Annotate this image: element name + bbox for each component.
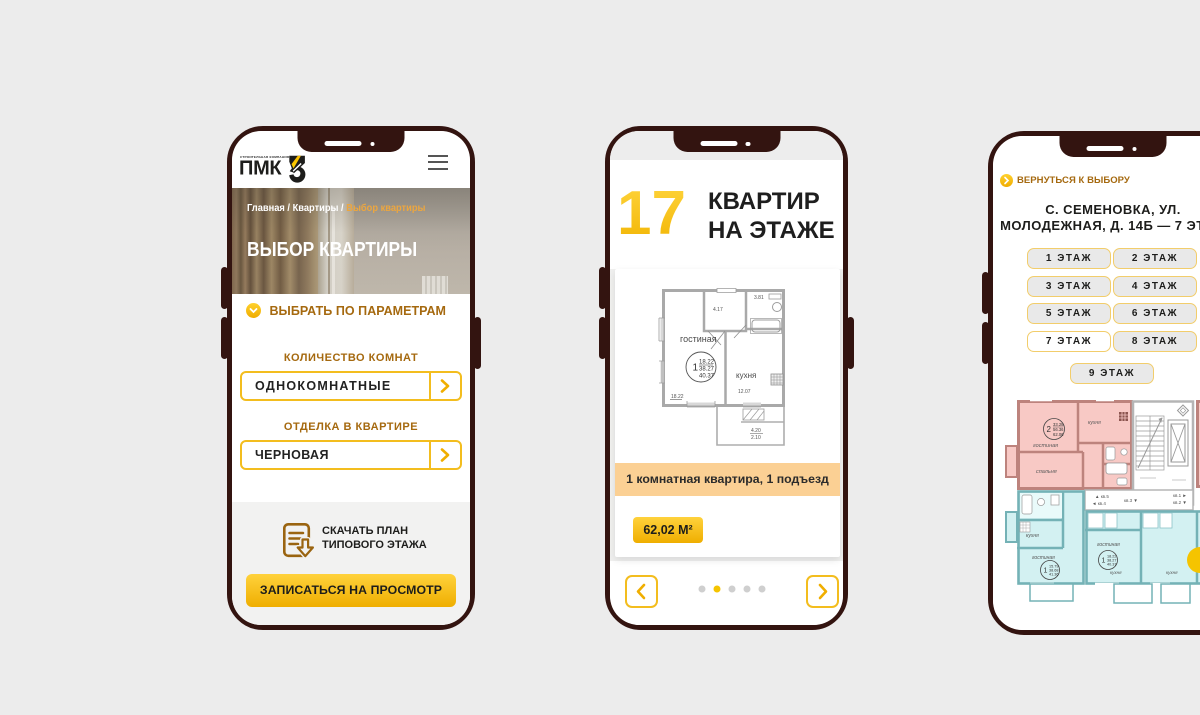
svg-text:4.17: 4.17 bbox=[713, 307, 723, 313]
svg-text:▲ кв.5: ▲ кв.5 bbox=[1095, 494, 1109, 499]
svg-text:1: 1 bbox=[1102, 558, 1106, 565]
svg-text:кв.2 ▼: кв.2 ▼ bbox=[1173, 500, 1187, 505]
svg-text:3.81: 3.81 bbox=[754, 295, 764, 301]
svg-text:◄ кв.4: ◄ кв.4 bbox=[1092, 501, 1106, 506]
svg-text:18.22: 18.22 bbox=[699, 360, 715, 366]
svg-text:гостиная: гостиная bbox=[1032, 555, 1055, 561]
svg-text:12.07: 12.07 bbox=[738, 389, 751, 395]
svg-text:кухня: кухня bbox=[1088, 420, 1101, 426]
svg-text:гостиная: гостиная bbox=[680, 334, 717, 344]
svg-text:62.06: 62.06 bbox=[1053, 432, 1064, 437]
svg-text:2.10: 2.10 bbox=[751, 435, 761, 441]
svg-text:4.20: 4.20 bbox=[751, 428, 761, 434]
svg-text:кухня: кухня bbox=[1026, 533, 1039, 539]
svg-text:кухня: кухня bbox=[1110, 570, 1122, 575]
svg-text:18.22: 18.22 bbox=[671, 394, 684, 400]
svg-text:40.37: 40.37 bbox=[699, 374, 715, 380]
svg-text:ПМК: ПМК bbox=[239, 158, 282, 180]
svg-text:кухня: кухня bbox=[736, 371, 756, 380]
svg-text:2: 2 bbox=[1047, 425, 1052, 434]
svg-text:кухня: кухня bbox=[1166, 570, 1178, 575]
svg-text:спальня: спальня bbox=[1036, 469, 1057, 475]
svg-text:гостиная: гостиная bbox=[1097, 542, 1120, 548]
svg-text:гостиная: гостиная bbox=[1033, 443, 1058, 449]
svg-text:40.37: 40.37 bbox=[1107, 563, 1117, 567]
svg-text:41.36: 41.36 bbox=[1049, 573, 1059, 577]
svg-text:1: 1 bbox=[693, 363, 699, 374]
svg-text:38.27: 38.27 bbox=[699, 367, 715, 373]
svg-text:кв.1 ►: кв.1 ► bbox=[1173, 493, 1187, 498]
svg-text:1: 1 bbox=[1044, 568, 1048, 575]
svg-text:кв.3 ▼: кв.3 ▼ bbox=[1124, 498, 1138, 503]
